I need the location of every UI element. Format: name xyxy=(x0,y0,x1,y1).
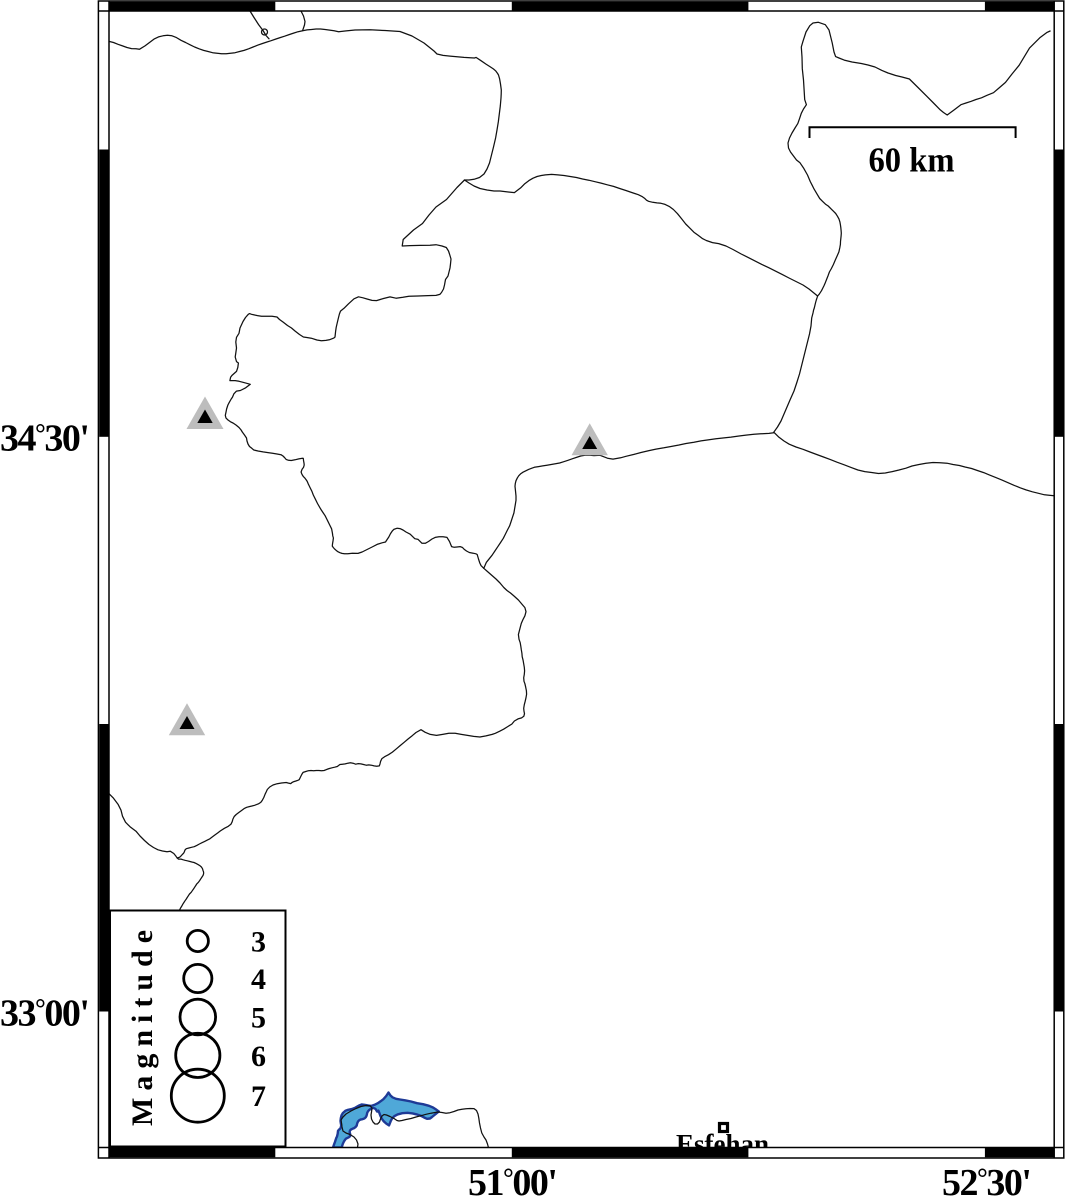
svg-text:6: 6 xyxy=(251,1040,266,1073)
svg-text:5: 5 xyxy=(251,1002,266,1035)
svg-text:33°00': 33°00' xyxy=(0,993,88,1035)
svg-text:34°30': 34°30' xyxy=(0,418,88,460)
svg-text:51°00': 51°00' xyxy=(468,1162,556,1196)
svg-text:Magnitude: Magnitude xyxy=(126,923,159,1126)
svg-text:4: 4 xyxy=(251,963,266,996)
svg-text:60 km: 60 km xyxy=(869,141,955,180)
svg-text:3: 3 xyxy=(251,926,266,959)
svg-text:7: 7 xyxy=(251,1080,266,1113)
svg-text:52°30': 52°30' xyxy=(942,1162,1030,1196)
